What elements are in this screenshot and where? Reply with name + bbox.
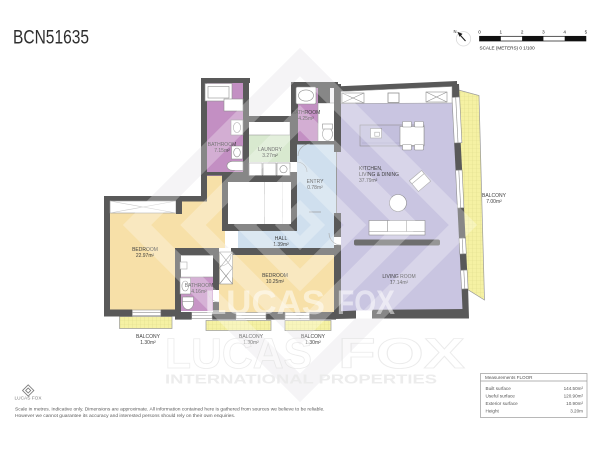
svg-text:2: 2: [521, 30, 524, 35]
svg-text:7.00m²: 7.00m²: [486, 199, 502, 205]
svg-text:Measurements FLOOR: Measurements FLOOR: [485, 375, 533, 380]
svg-text:3.20m: 3.20m: [570, 409, 583, 414]
svg-text:LUCAS: LUCAS: [205, 284, 325, 322]
svg-text:Built surface: Built surface: [486, 386, 512, 391]
svg-text:22.97m²: 22.97m²: [136, 253, 155, 259]
svg-text:FOX: FOX: [338, 330, 465, 378]
svg-text:LUCAS FOX: LUCAS FOX: [15, 396, 42, 401]
svg-text:120.90m²: 120.90m²: [564, 394, 584, 399]
svg-text:However we cannot guarantee it: However we cannot guarantee its accuracy…: [15, 413, 235, 419]
svg-text:1.30m²: 1.30m²: [140, 340, 156, 346]
svg-text:N: N: [454, 29, 457, 34]
svg-text:144.50m²: 144.50m²: [564, 386, 584, 391]
svg-text:SCALE (METERS) 0 1/100: SCALE (METERS) 0 1/100: [480, 46, 536, 51]
svg-text:Height: Height: [486, 409, 500, 414]
svg-text:4: 4: [563, 30, 566, 35]
svg-text:BCN51635: BCN51635: [13, 28, 89, 49]
svg-text:5: 5: [585, 30, 588, 35]
svg-text:3: 3: [542, 30, 545, 35]
svg-text:Scale in metres. Indicative on: Scale in metres. Indicative only. Dimens…: [15, 407, 325, 413]
svg-text:10.90m²: 10.90m²: [566, 401, 583, 406]
svg-text:Useful surface: Useful surface: [486, 394, 516, 399]
svg-text:0: 0: [478, 30, 481, 35]
svg-text:LUCAS: LUCAS: [165, 330, 312, 378]
svg-text:Exterior surface: Exterior surface: [486, 401, 519, 406]
svg-text:INTERNATIONAL PROPERTIES: INTERNATIONAL PROPERTIES: [165, 373, 437, 387]
svg-text:FOX: FOX: [337, 284, 395, 322]
svg-text:1: 1: [500, 30, 503, 35]
